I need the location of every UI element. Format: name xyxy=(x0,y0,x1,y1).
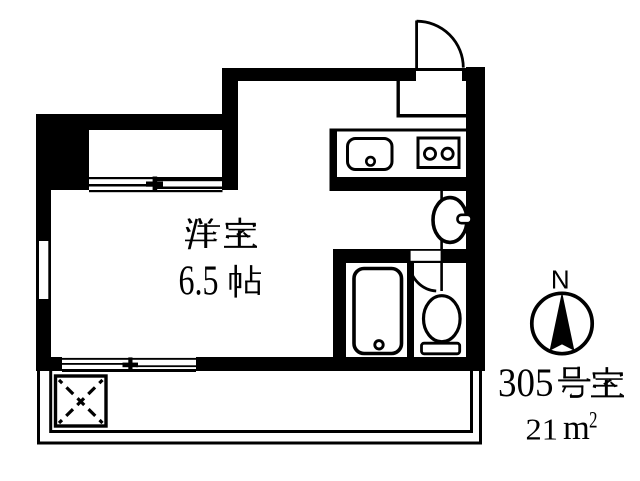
svg-text:2: 2 xyxy=(589,408,598,433)
svg-text:305: 305 xyxy=(498,360,554,405)
svg-text:m: m xyxy=(563,409,590,447)
svg-text:21: 21 xyxy=(526,412,559,447)
svg-text:6.5: 6.5 xyxy=(179,258,219,305)
svg-text:N: N xyxy=(551,265,570,295)
